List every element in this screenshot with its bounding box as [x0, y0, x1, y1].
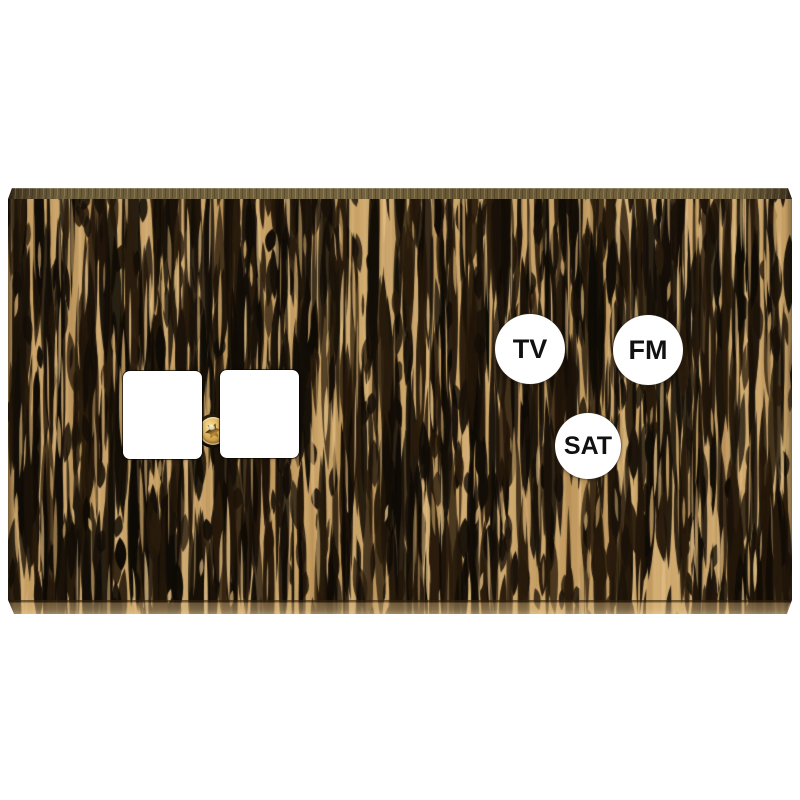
keystone-cutout-right — [220, 370, 299, 458]
plate-bottom-bevel-edge — [8, 600, 792, 614]
sat-port-cutout: SAT — [555, 413, 621, 479]
tv-port-label: TV — [513, 336, 548, 363]
mounting-screw-bottom-left — [196, 728, 230, 762]
screw-head-icon — [571, 731, 599, 759]
fm-port-label: FM — [629, 337, 668, 364]
mounting-screw-bottom-right — [568, 728, 602, 762]
tv-port-cutout: TV — [495, 314, 565, 384]
sat-port-label: SAT — [564, 434, 612, 459]
screw-head-icon — [199, 731, 227, 759]
screw-star-recess-icon — [574, 734, 597, 757]
keystone-cutout-left — [123, 371, 202, 459]
screw-highlight — [580, 739, 587, 744]
screw-star-recess-icon — [203, 735, 222, 754]
fm-port-cutout: FM — [613, 315, 683, 385]
product-photo: TV FM SAT — [0, 0, 800, 800]
wall-plate: TV FM SAT — [8, 188, 792, 614]
screw-highlight — [208, 425, 215, 430]
screw-highlight — [208, 739, 215, 744]
